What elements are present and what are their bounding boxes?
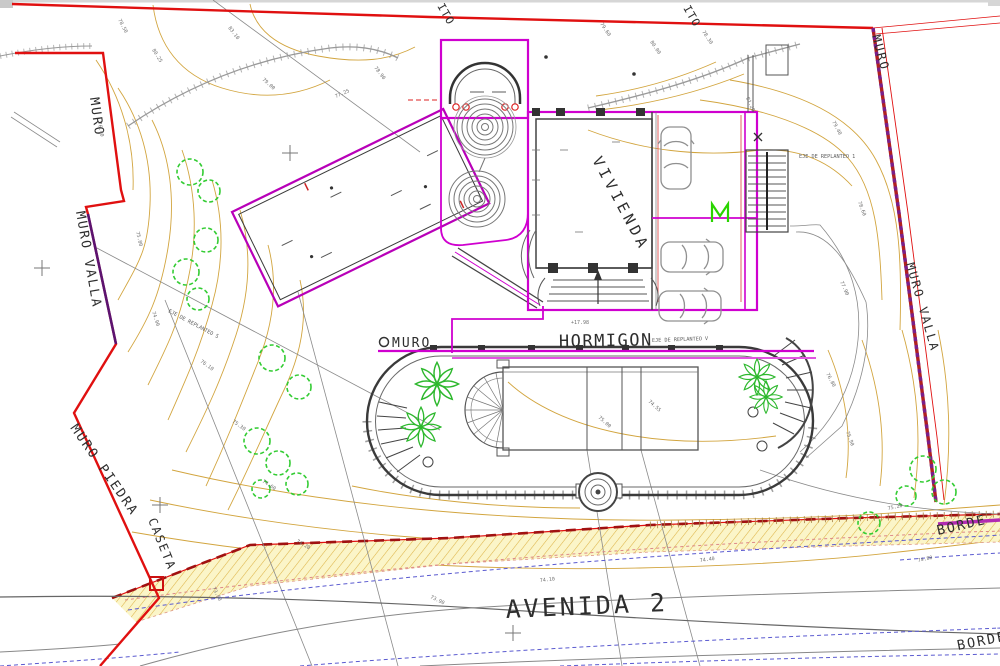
elevation-mark: 79.60 xyxy=(598,22,611,38)
label-hormigon-note: EJE DE REPLANTEO V xyxy=(652,336,708,344)
elevation-mark: 78.50 xyxy=(116,18,128,34)
spiral-feature-upper xyxy=(454,96,516,158)
elevation-mark: 77.25 xyxy=(334,88,350,100)
elevation-mark: 81.20 xyxy=(744,96,756,112)
elevation-mark: 80.25 xyxy=(150,48,163,64)
elevation-mark: 75.90 xyxy=(844,431,855,447)
chimney xyxy=(766,45,788,75)
label-muro-driveway: MURO xyxy=(392,336,431,351)
elevation-mark: 78.30 xyxy=(700,30,713,46)
elevation-mark: 76.80 xyxy=(824,372,836,388)
elevation-mark: 75.80 xyxy=(134,231,143,247)
elevation-mark: 74.90 xyxy=(150,311,160,327)
label-eje-replanteo-1: EJE DE REPLANTEO 1 xyxy=(799,154,855,160)
car-3 xyxy=(659,288,721,324)
site-plan-screenshot: MURO MURO VALLA MURO PIEDRA CASETA MURO … xyxy=(0,0,1000,666)
scan-edge xyxy=(0,0,1000,8)
elevation-mark: 78.90 xyxy=(372,66,386,82)
staircase xyxy=(745,112,788,310)
label-muro-piedra: MURO PIEDRA xyxy=(67,422,141,519)
elevation-mark: 75.20 xyxy=(887,503,903,512)
elevation-mark: 80.00 xyxy=(648,40,661,56)
elevation-mark: 75.00 xyxy=(597,415,612,430)
contour-lines xyxy=(96,4,1000,569)
muro-marker-circle xyxy=(380,338,389,347)
label-hito-right: ITO xyxy=(680,3,703,29)
gate-m-symbol xyxy=(712,204,728,222)
elevation-mark: +17.98 xyxy=(571,320,589,326)
pool-terrace xyxy=(465,360,698,456)
elevation-mark: 78.60 xyxy=(856,201,867,217)
driveway-medallion xyxy=(576,473,622,511)
elevation-mark: 83.10 xyxy=(226,26,240,42)
label-muro-valla-right: MURO VALLA xyxy=(903,261,942,354)
elevation-mark: 75.30 xyxy=(231,419,247,433)
left-curved-stair xyxy=(377,402,433,472)
label-muro-top-right: MURO xyxy=(869,33,892,72)
elevation-mark: 74.10 xyxy=(540,576,556,584)
elevation-mark: 79.00 xyxy=(261,77,276,92)
property-boundary xyxy=(12,4,1000,666)
label-caseta: CASETA xyxy=(145,516,179,573)
elevation-mark: 73.90 xyxy=(429,594,445,606)
main-house-vivienda xyxy=(521,45,788,324)
elevation-labels: 78.5080.2583.1079.0076.4075.8074.9076.10… xyxy=(96,18,933,606)
car-1 xyxy=(658,127,694,189)
car-2 xyxy=(661,239,723,275)
elevation-mark: 79.40 xyxy=(830,120,842,136)
site-plan-drawing: MURO MURO VALLA MURO PIEDRA CASETA MURO … xyxy=(0,0,1000,666)
label-hormigon: HORMIGON xyxy=(559,330,653,352)
elevation-mark: 76.10 xyxy=(199,359,215,373)
elevation-mark: 77.90 xyxy=(838,280,850,296)
elevation-mark: 74.80 xyxy=(917,555,933,564)
elevation-mark: 74.40 xyxy=(699,556,715,564)
label-vivienda: VIVIENDA xyxy=(588,153,653,253)
label-hito-left: ITO xyxy=(434,1,457,27)
elevation-mark: 74.55 xyxy=(647,399,662,414)
